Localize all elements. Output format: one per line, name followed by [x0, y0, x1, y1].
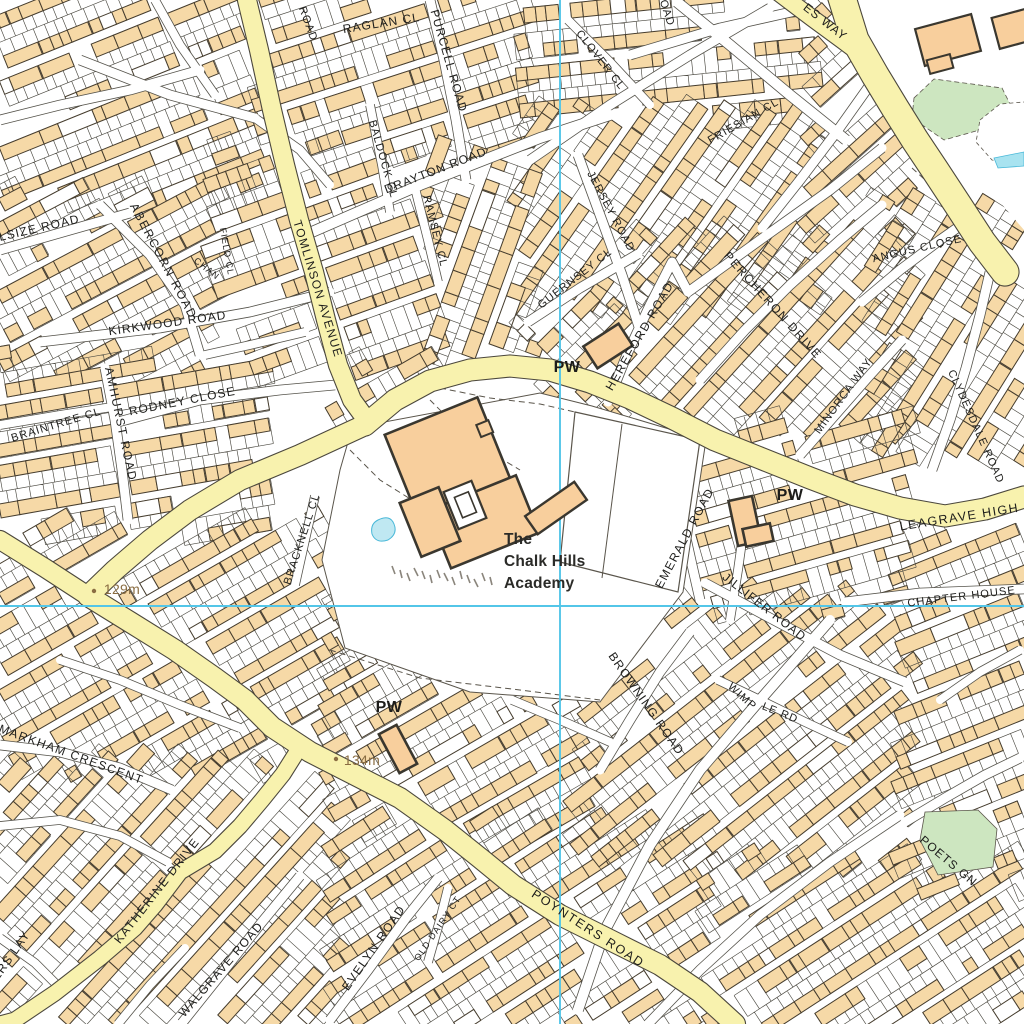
svg-text:The: The — [504, 531, 532, 548]
svg-text:PW: PW — [376, 699, 403, 716]
svg-text:PW: PW — [554, 359, 581, 376]
svg-text:134m: 134m — [344, 752, 380, 768]
svg-text:PW: PW — [777, 487, 804, 504]
svg-text:129m: 129m — [104, 581, 140, 597]
svg-text:Academy: Academy — [504, 575, 575, 592]
svg-text:Chalk Hills: Chalk Hills — [504, 553, 585, 570]
